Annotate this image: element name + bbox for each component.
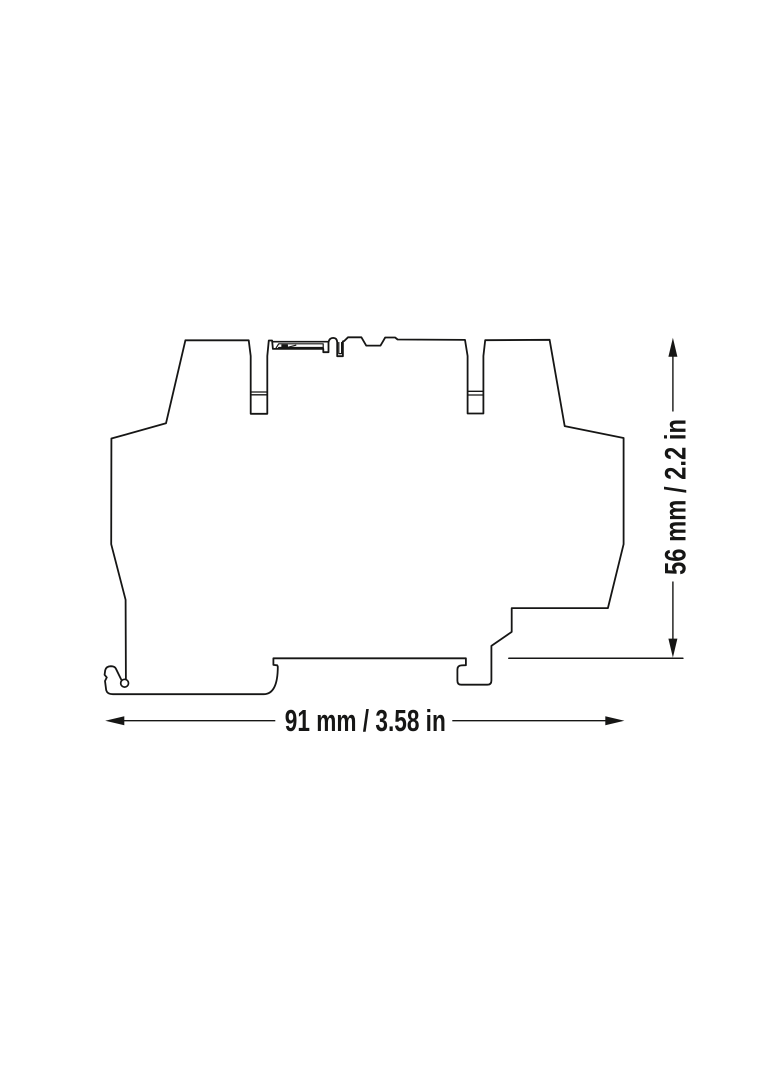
svg-text:91 mm / 3.58 in: 91 mm / 3.58 in [285, 703, 446, 738]
svg-text:56 mm / 2.2 in: 56 mm / 2.2 in [659, 419, 692, 575]
